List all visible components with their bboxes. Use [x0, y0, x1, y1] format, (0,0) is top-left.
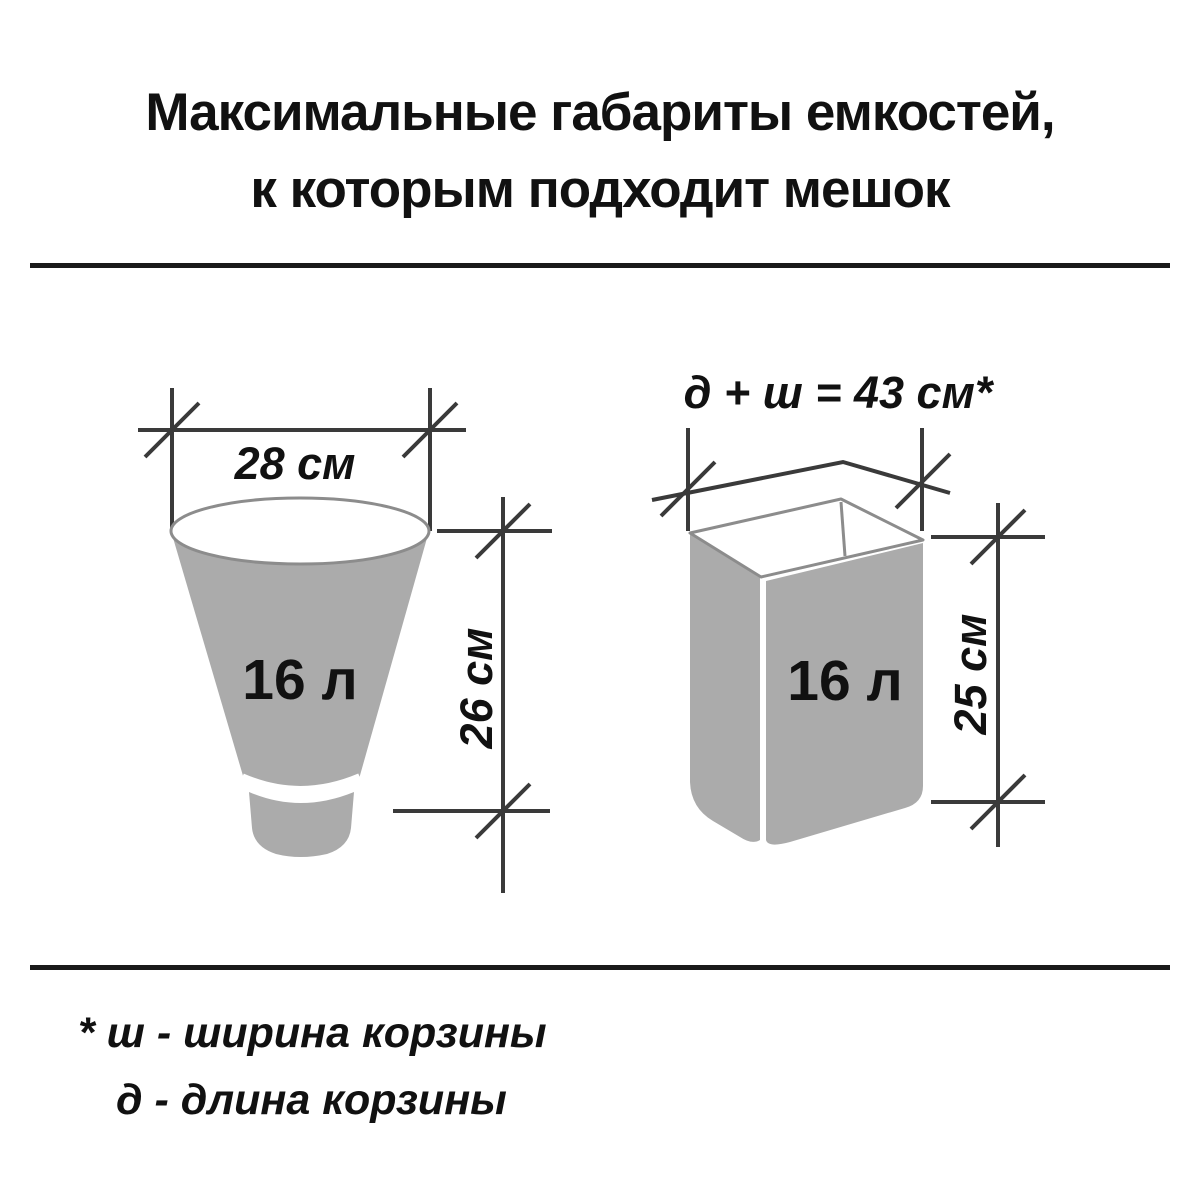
basket-height-label: 25 см	[945, 614, 996, 736]
bucket-base	[249, 792, 354, 857]
footnote-length-definition: д - длина корзины	[116, 1067, 547, 1134]
bucket-rim-opening	[171, 498, 429, 564]
bottom-divider-line	[30, 965, 1170, 970]
bucket-volume-label: 16 л	[242, 648, 357, 712]
rect-basket-diagram: д + ш = 43 см* 16 л 25 см	[652, 367, 1045, 847]
basket-volume-label: 16 л	[787, 649, 902, 713]
basket-formula-label: д + ш = 43 см*	[684, 367, 995, 418]
footnote-width-definition: * ш - ширина корзины	[78, 1000, 547, 1067]
round-bucket-diagram: 28 см 16 л 26 см	[138, 388, 552, 893]
bucket-height-label: 26 см	[451, 628, 502, 750]
basket-left-face	[690, 533, 760, 842]
footnote: * ш - ширина корзины д - длина корзины	[78, 1000, 547, 1134]
bucket-width-label: 28 см	[234, 438, 356, 489]
infographic-canvas: Максимальные габариты емкостей, к которы…	[0, 0, 1200, 1200]
